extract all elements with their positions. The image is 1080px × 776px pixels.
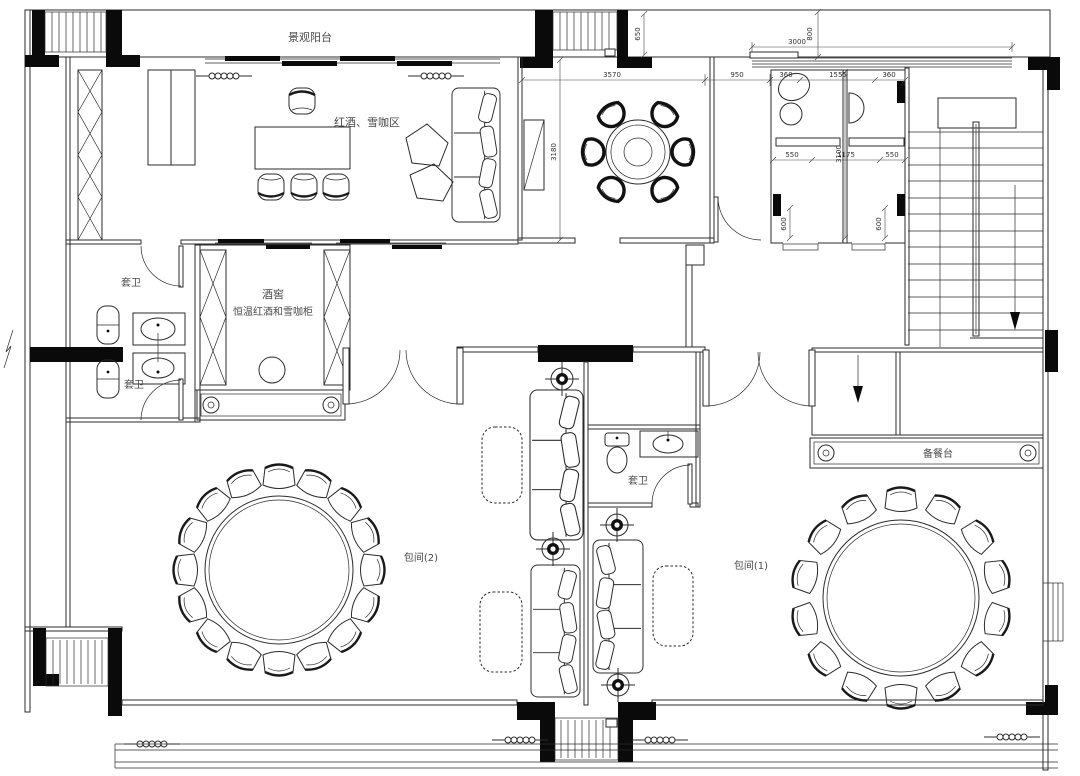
door-arc-lower bbox=[141, 380, 181, 420]
dim-balcony-depth: 650 bbox=[634, 27, 642, 40]
dim-wc-width: 1555 bbox=[829, 71, 847, 79]
private-room-2: 包间(2) bbox=[174, 465, 439, 676]
hall-doors bbox=[343, 197, 815, 406]
door-arc-upper bbox=[141, 246, 181, 286]
corridor-door-arc bbox=[718, 197, 761, 240]
private-room-2-label: 包间(2) bbox=[404, 551, 438, 564]
long-table bbox=[255, 127, 350, 169]
stair-landing bbox=[938, 98, 1016, 128]
dim-wc-inner-b: 550 bbox=[885, 151, 898, 159]
basin-icon bbox=[780, 103, 802, 125]
dim-fixture-a: 600 bbox=[780, 217, 788, 230]
dining-set bbox=[583, 99, 694, 205]
coffee-table-3 bbox=[653, 566, 693, 646]
side-table-1 bbox=[406, 124, 448, 166]
wine-cellar: 酒窖 恒温红酒和雪咖柜 bbox=[195, 239, 446, 420]
dimension-annotations: 3000 800 650 3570 950 360 1555 360 3180 … bbox=[519, 9, 1015, 243]
wine-coffee-label: 红酒、雪咖区 bbox=[334, 115, 400, 129]
dim-wc-inner-a: 550 bbox=[785, 151, 798, 159]
dim-top-depth: 800 bbox=[806, 27, 814, 40]
sofa-lower-left bbox=[531, 565, 580, 697]
dim-dining-width: 3570 bbox=[603, 71, 621, 79]
sliding-door-wc bbox=[750, 52, 1012, 67]
dim-fixture-b: 600 bbox=[875, 217, 883, 230]
stairwell bbox=[853, 98, 1043, 403]
ensuite-middle-label: 套卫 bbox=[628, 474, 648, 487]
dim-dining-depth: 3180 bbox=[550, 143, 558, 161]
serving-counter: 备餐台 bbox=[810, 438, 1043, 468]
dim-corridor-width: 950 bbox=[730, 71, 743, 79]
sofa-upper-left bbox=[530, 390, 583, 540]
ensuite-lower-label: 套卫 bbox=[124, 378, 144, 391]
middle-ensuite: 套卫 bbox=[605, 431, 698, 504]
cellar-label-2: 恒温红酒和雪咖柜 bbox=[233, 305, 313, 318]
dim-wc-depth: 3100 bbox=[835, 145, 843, 163]
coffee-table-2 bbox=[480, 592, 522, 672]
basin-semicircle-icon bbox=[849, 93, 864, 123]
floor-plan-canvas: 景观阳台 红酒、雪咖区 bbox=[0, 0, 1080, 776]
coffee-table-1 bbox=[482, 427, 522, 503]
private-room-1-label: 包间(1) bbox=[734, 559, 768, 572]
sofa-lower-right bbox=[593, 540, 643, 673]
toilet-middle-icon bbox=[607, 447, 627, 473]
side-table-2 bbox=[410, 164, 453, 201]
ensuite-bathrooms: 套卫 套卫 bbox=[97, 246, 185, 420]
ceiling-light-icon bbox=[536, 532, 570, 566]
flow-arrow bbox=[853, 386, 863, 403]
balcony-label: 景观阳台 bbox=[288, 30, 332, 44]
lounge-sofa bbox=[452, 88, 500, 222]
stair-down-arrow bbox=[1010, 312, 1020, 330]
dim-top-width: 3000 bbox=[788, 38, 806, 46]
door-arc-middle bbox=[652, 465, 690, 504]
balcony: 景观阳台 bbox=[288, 30, 332, 44]
private-room-1: 包间(1) bbox=[734, 488, 1012, 709]
ceiling-light-icon bbox=[545, 362, 579, 396]
dim-wc-b: 360 bbox=[882, 71, 895, 79]
cellar-label-1: 酒窖 bbox=[262, 287, 284, 301]
sliding-door-top bbox=[196, 56, 500, 79]
floor-plan-drawing: 景观阳台 红酒、雪咖区 bbox=[0, 0, 1080, 776]
center-sofas bbox=[480, 362, 693, 702]
ceiling-light-icon bbox=[600, 508, 634, 542]
ensuite-upper-label: 套卫 bbox=[121, 276, 141, 289]
dim-wc-a: 360 bbox=[779, 71, 792, 79]
wine-coffee-lounge: 红酒、雪咖区 bbox=[78, 70, 544, 240]
serving-counter-label: 备餐台 bbox=[923, 447, 953, 460]
